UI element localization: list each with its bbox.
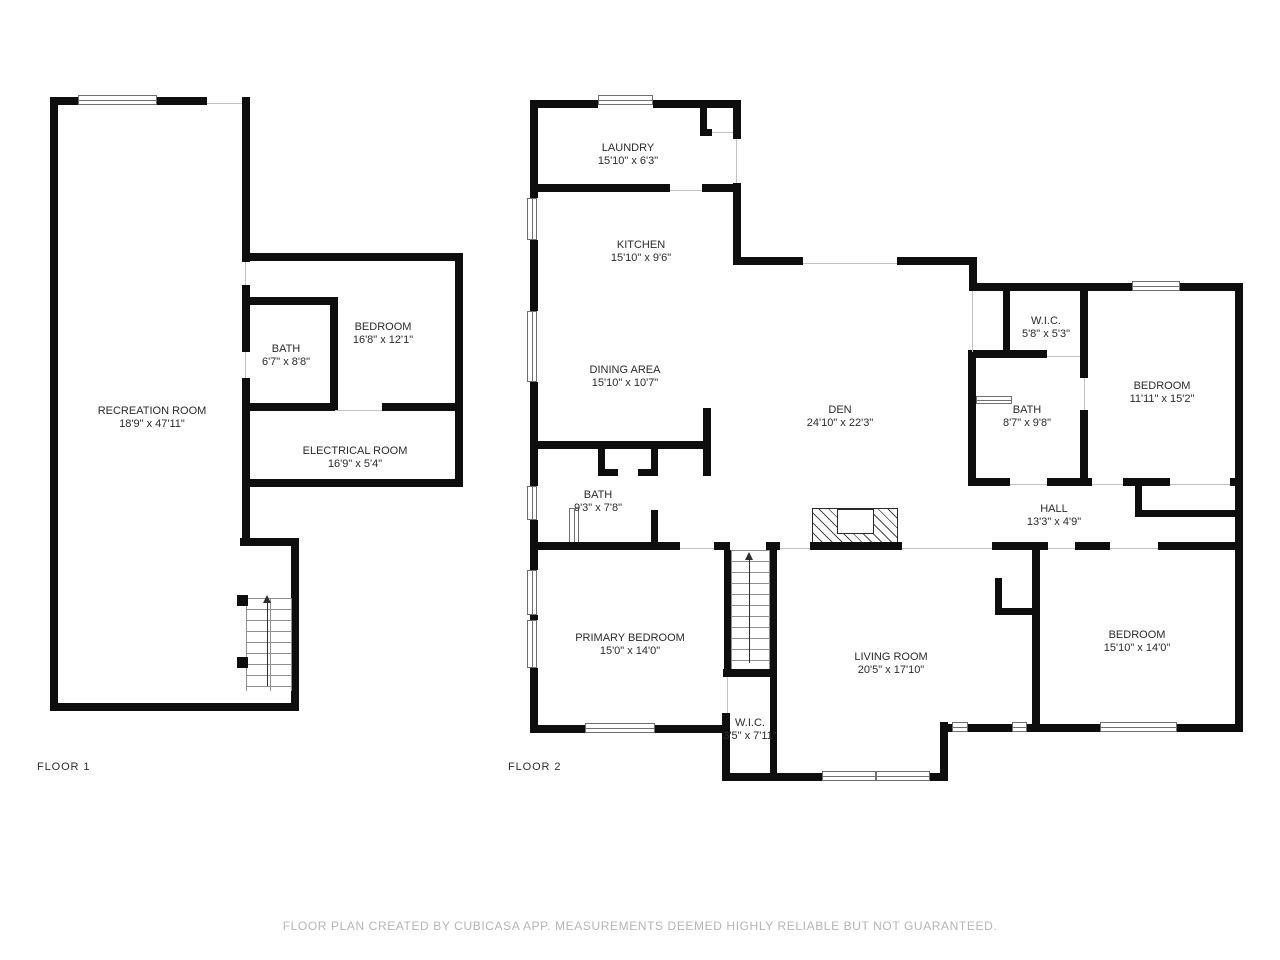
door-opening: [736, 139, 737, 183]
wall: [530, 382, 538, 486]
wall: [50, 97, 58, 711]
door-opening: [1047, 356, 1080, 357]
wall: [1235, 283, 1243, 732]
window: [822, 771, 876, 781]
room-label-dining-area: DINING AREA 15'10" x 10'7": [590, 364, 661, 390]
stair-post: [237, 657, 248, 668]
room-label-bath-middle: BATH 9'3" x 7'8": [574, 489, 622, 515]
room-label-electrical-room: ELECTRICAL ROOM 16'9" x 5'4": [303, 445, 408, 471]
door-opening: [1010, 484, 1047, 485]
wall: [530, 725, 585, 733]
wall: [1047, 478, 1092, 486]
room-name: DEN: [807, 404, 873, 417]
wall: [733, 183, 741, 265]
room-dims: 16'8" x 12'1": [353, 334, 413, 347]
room-dims: 5'8" x 5'3": [1022, 328, 1070, 341]
window: [1100, 722, 1177, 732]
wall: [1158, 542, 1243, 550]
wall: [242, 253, 463, 261]
room-name: BEDROOM: [353, 321, 413, 334]
wall: [653, 100, 740, 108]
stair-treads: [246, 598, 292, 691]
room-dims: 3'5" x 7'11": [723, 730, 776, 743]
room-label-hall: HALL 13'3" x 4'9": [1027, 503, 1081, 529]
floor-plan-canvas: RECREATION ROOM 18'9" x 47'11" BATH 6'7"…: [0, 0, 1280, 960]
room-name: ELECTRICAL ROOM: [303, 445, 408, 458]
wall: [766, 542, 780, 550]
wall: [598, 469, 618, 476]
room-label-recreation-room: RECREATION ROOM 18'9" x 47'11": [98, 405, 207, 431]
wall: [455, 253, 463, 487]
room-dims: 11'11" x 15'2": [1130, 393, 1195, 406]
wall: [1142, 510, 1243, 517]
door-opening: [245, 262, 246, 285]
door-opening: [712, 132, 733, 133]
window: [527, 198, 537, 240]
stair-wall: [723, 669, 777, 677]
room-dims: 15'10" x 9'6": [611, 252, 671, 265]
room-dims: 15'10" x 10'7": [590, 377, 661, 390]
door-opening: [780, 548, 810, 549]
room-name: KITCHEN: [611, 239, 671, 252]
room-name: LAUNDRY: [598, 142, 658, 155]
stair-wall: [770, 550, 777, 781]
wall: [242, 97, 250, 262]
wall: [968, 478, 1010, 486]
stair-direction-arrow: [267, 603, 268, 686]
stair-rail: [270, 598, 271, 691]
room-label-bedroom-bottom: BEDROOM 15'10" x 14'0": [1104, 629, 1170, 655]
room-dims: 16'9" x 5'4": [303, 458, 408, 471]
room-name: W.I.C.: [1022, 315, 1070, 328]
door-opening: [207, 103, 242, 104]
room-label-kitchen: KITCHEN 15'10" x 9'6": [611, 239, 671, 265]
door-opening: [245, 352, 246, 378]
wall: [970, 283, 977, 291]
wall: [1080, 291, 1088, 378]
door-opening: [972, 291, 973, 352]
room-label-wic-lower: W.I.C. 3'5" x 7'11": [723, 717, 776, 743]
wall: [968, 352, 976, 486]
room-dims: 6'7" x 8'8": [262, 356, 310, 369]
wall: [638, 469, 658, 476]
towel-bar: [976, 396, 1012, 404]
door-opening: [1170, 484, 1230, 485]
wall: [810, 542, 902, 550]
wall: [995, 608, 1040, 615]
wall: [530, 542, 680, 550]
room-name: HALL: [1027, 503, 1081, 516]
room-label-laundry: LAUNDRY 15'10" x 6'3": [598, 142, 658, 168]
door-opening: [902, 548, 992, 549]
window: [598, 95, 653, 105]
stair-post: [237, 595, 248, 606]
floor1-tag: FLOOR 1: [37, 761, 90, 773]
wall: [968, 350, 1047, 358]
wall: [897, 257, 977, 265]
wall: [703, 408, 711, 476]
wall: [1177, 724, 1243, 732]
wall: [382, 403, 463, 411]
room-label-living-room: LIVING ROOM 20'5" x 17'10": [854, 651, 927, 677]
door-opening: [670, 190, 702, 191]
wall: [247, 297, 337, 305]
window: [527, 570, 537, 615]
room-name: BEDROOM: [1130, 380, 1195, 393]
window: [952, 722, 968, 732]
wall: [1080, 410, 1088, 486]
wall: [530, 441, 707, 449]
wall: [1032, 550, 1040, 724]
wall: [291, 540, 299, 711]
window: [527, 486, 537, 520]
room-label-bedroom-right: BEDROOM 11'11" x 15'2": [1130, 380, 1195, 406]
door-opening: [680, 548, 714, 549]
wall: [1123, 478, 1170, 486]
window: [1012, 722, 1027, 732]
room-label-bedroom-f1: BEDROOM 16'8" x 12'1": [353, 321, 413, 347]
door-opening: [727, 677, 728, 713]
room-name: W.I.C.: [723, 717, 776, 730]
wall: [242, 479, 463, 487]
room-dims: 8'7" x 9'8": [1003, 417, 1051, 430]
wall: [1075, 542, 1110, 550]
wall: [1135, 486, 1142, 517]
fireplace: [812, 508, 898, 543]
wall: [1230, 478, 1243, 486]
door-opening: [335, 410, 382, 411]
wall: [530, 100, 598, 108]
wall: [530, 184, 670, 192]
wall: [1180, 283, 1243, 291]
wall: [722, 773, 822, 781]
room-dims: 15'10" x 14'0": [1104, 642, 1170, 655]
firebox: [837, 509, 874, 534]
stair-direction-arrow: [749, 560, 750, 663]
room-name: BATH: [262, 343, 310, 356]
window: [527, 311, 537, 382]
wall: [714, 542, 730, 550]
room-dims: 24'10" x 22'3": [807, 417, 873, 430]
door-opening: [803, 263, 897, 264]
wall: [330, 297, 338, 411]
room-dims: 9'3" x 7'8": [574, 502, 622, 515]
wall: [1027, 724, 1100, 732]
wall: [50, 703, 299, 711]
room-name: RECREATION ROOM: [98, 405, 207, 418]
room-label-wic-upper: W.I.C. 5'8" x 5'3": [1022, 315, 1070, 341]
wall: [1003, 291, 1010, 357]
wall: [242, 285, 250, 352]
window: [585, 723, 655, 733]
window: [78, 95, 157, 105]
stair-arrow-head: [745, 552, 753, 560]
window: [527, 620, 537, 668]
wall: [737, 257, 803, 265]
room-name: BEDROOM: [1104, 629, 1170, 642]
stair-treads: [731, 550, 770, 669]
wall: [992, 542, 1048, 550]
wall: [655, 725, 722, 733]
disclaimer-text: FLOOR PLAN CREATED BY CUBICASA APP. MEAS…: [0, 919, 1280, 933]
door-opening: [1084, 378, 1085, 410]
floor2-tag: FLOOR 2: [508, 761, 561, 773]
room-name: LIVING ROOM: [854, 651, 927, 664]
room-dims: 18'9" x 47'11": [98, 418, 207, 431]
stair-arrow-head: [263, 595, 271, 603]
wall: [530, 668, 538, 733]
room-label-primary-bedroom: PRIMARY BEDROOM 15'0" x 14'0": [575, 632, 685, 658]
door-opening: [1048, 548, 1075, 549]
wall: [242, 403, 335, 411]
window: [1132, 281, 1180, 291]
room-name: BATH: [574, 489, 622, 502]
room-name: DINING AREA: [590, 364, 661, 377]
room-name: BATH: [1003, 404, 1051, 417]
room-dims: 13'3" x 4'9": [1027, 516, 1081, 529]
door-opening: [1110, 548, 1158, 549]
room-dims: 15'10" x 6'3": [598, 155, 658, 168]
wall: [530, 240, 538, 311]
wall: [700, 129, 712, 136]
room-dims: 20'5" x 17'10": [854, 664, 927, 677]
wall: [733, 100, 741, 139]
door-opening: [1092, 484, 1123, 485]
wall: [157, 97, 207, 105]
room-label-bath-right: BATH 8'7" x 9'8": [1003, 404, 1051, 430]
stair-wall: [724, 550, 731, 669]
window: [876, 771, 930, 781]
room-name: PRIMARY BEDROOM: [575, 632, 685, 645]
room-label-bath-f1: BATH 6'7" x 8'8": [262, 343, 310, 369]
wall: [977, 283, 1132, 291]
wall: [968, 724, 1012, 732]
room-label-den: DEN 24'10" x 22'3": [807, 404, 873, 430]
room-dims: 15'0" x 14'0": [575, 645, 685, 658]
wall: [940, 722, 948, 781]
